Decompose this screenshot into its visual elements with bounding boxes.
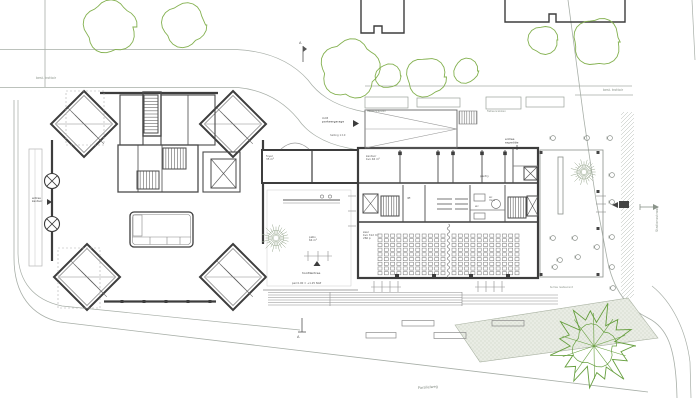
label-room-b: pantry — [480, 174, 489, 178]
label-west-entry: entreekantoor — [32, 196, 43, 203]
label-note-nw: best. trottoir — [36, 76, 57, 80]
left-tower-building — [29, 91, 266, 310]
site-plan-drawing: best. trottoirbest. trottoirStationsstra… — [0, 0, 697, 400]
label-marker-top: A — [299, 41, 302, 45]
site-plan-page: best. trottoirbest. trottoirStationsstra… — [0, 0, 697, 400]
label-room-d: wc — [475, 204, 479, 208]
label-peil: peil 0.00 = +1.25 NAP — [292, 281, 322, 285]
label-ramp-slope: helling 1:10 — [330, 133, 346, 137]
terrace — [540, 136, 630, 291]
label-hoofdentree: hoofdentree — [302, 271, 320, 275]
label-zaal: zaalbvo 312 m²260 p — [363, 230, 378, 240]
label-terras: terras restaurant — [550, 285, 573, 289]
link-and-courtyard — [262, 143, 358, 290]
label-entry-ne: entreeexpeditie — [505, 137, 519, 144]
neighbor-buildings — [361, 0, 625, 33]
label-bike-1: fietsenrekken — [367, 109, 386, 113]
label-patio: patio64 m² — [309, 235, 317, 242]
label-room-c: lift — [407, 196, 410, 200]
label-note-ne: best. trottoir — [603, 88, 624, 92]
label-link-room: foyer35 m² — [266, 154, 274, 161]
label-marker-bottom: A — [297, 335, 300, 339]
label-room-a: kantoorbvo 46 m² — [366, 154, 380, 161]
label-street-east: Stationsstraat — [655, 207, 659, 232]
label-street-south: Parallelweg — [418, 385, 438, 390]
label-bike-2: fietsenrekken — [487, 109, 506, 113]
label-room-e: wcmiva — [489, 196, 496, 202]
label-ramp-entry: inritparkeergarage — [322, 116, 344, 123]
